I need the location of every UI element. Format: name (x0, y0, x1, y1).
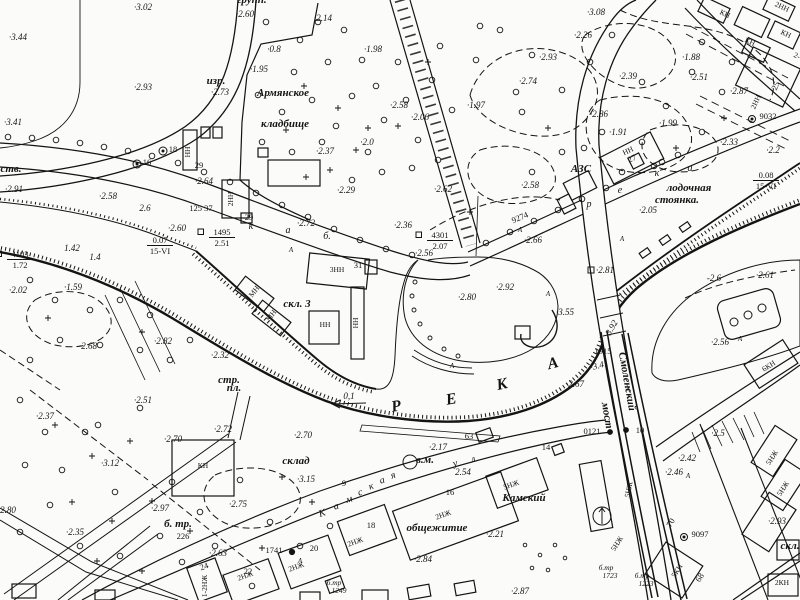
topographic-map: АрмянскоекладбищеАЗСлодочнаястоянка.скла… (0, 0, 800, 600)
island-outline (652, 260, 800, 381)
tree-symbol (179, 559, 185, 565)
tree-symbol (639, 79, 645, 85)
point-number: 20 (310, 543, 319, 553)
spot-elevation: ·2.39 (619, 71, 638, 81)
point-number: 29 (195, 160, 204, 170)
utility-booth-label: 1223 (639, 579, 654, 588)
cross-symbol (127, 438, 133, 444)
place-label: б. тр. (164, 518, 192, 530)
spot-elevation: ·2.5 (711, 428, 725, 438)
street-name-letter: б. (323, 231, 331, 242)
tree-symbol (410, 294, 414, 298)
tree-symbol (412, 308, 416, 312)
building (679, 222, 691, 233)
place-label: изр. (207, 75, 226, 87)
street-name-letter: а (286, 225, 291, 236)
spot-elevation: ·2.60 (236, 9, 255, 19)
tree-symbol (77, 543, 83, 549)
cross-symbol (365, 125, 371, 131)
building-type-label: 5НЖ (764, 448, 780, 466)
spot-elevation: ·2.58 (390, 100, 409, 110)
tree-symbol (263, 19, 269, 25)
spot-elevation: ·2.37 (316, 146, 335, 156)
cross-symbol (52, 422, 58, 428)
spot-elevation: 1.4 (89, 252, 101, 262)
tree-symbol (599, 129, 605, 135)
building-type-label: 2НН (749, 93, 764, 111)
tree-symbol (553, 543, 557, 547)
building-type-label: 5НЖ (775, 479, 791, 497)
benchmark-square (198, 229, 204, 235)
spot-elevation: ·2.62 (434, 184, 453, 194)
pole-symbol-dot (136, 163, 138, 165)
river-name-letter: Р (389, 397, 403, 416)
building (454, 580, 476, 595)
spot-elevation: ·1.99 (659, 118, 678, 128)
spot-elevation: ·3.02 (134, 2, 153, 12)
tree-symbol (95, 422, 101, 428)
building-type-label: 5НЖ (609, 534, 625, 552)
tree-symbol (381, 117, 387, 123)
tree-symbol (529, 169, 535, 175)
spot-elevation: ·2.97 (151, 503, 170, 513)
place-label: АЗС (570, 163, 592, 175)
building-type-label: НН (183, 146, 192, 157)
peninsula (360, 196, 558, 442)
tree-symbol (77, 140, 83, 146)
water-level-mark-top: 0.07 (153, 235, 168, 245)
tree-symbol (563, 556, 567, 560)
tree-symbol (449, 107, 455, 113)
tree-symbol (373, 83, 379, 89)
spot-elevation: ·2.87 (730, 86, 749, 96)
tree-symbol (112, 489, 118, 495)
street-name-letter: с (356, 487, 364, 499)
tree-symbol (415, 137, 421, 143)
place-label: общежитие (407, 522, 468, 534)
building-type-label: 2КН (775, 578, 790, 587)
spot-elevation: ·2.91 (5, 184, 23, 194)
tree-symbol (699, 129, 705, 135)
tree-symbol (197, 509, 203, 515)
place-label: Армянское (256, 87, 309, 99)
tree-symbol (201, 169, 207, 175)
manhole-symbol (608, 430, 613, 435)
tree-symbol (359, 57, 365, 63)
river-name-letter: Е (444, 390, 458, 409)
building-type-label: 5КН (669, 562, 685, 579)
benchmark-bottom: 2.07 (433, 241, 448, 251)
spot-elevation: ·2.70 (294, 430, 313, 440)
spot-elevation: ·2.51 (134, 395, 152, 405)
surface-material-mark: А (545, 290, 551, 298)
tree-symbol (279, 109, 285, 115)
spot-elevation: ·2.58 (521, 180, 540, 190)
spot-elevation: ·2.92 (496, 282, 515, 292)
cross-symbol (279, 474, 285, 480)
spot-elevation: ·2.66 (524, 235, 543, 245)
tree-symbol (137, 405, 143, 411)
tree-symbol (456, 354, 460, 358)
benchmark-bottom: 1.72 (13, 260, 28, 270)
building (337, 505, 396, 556)
tree-symbol (259, 139, 265, 145)
utility-booth-label: 1249 (332, 586, 347, 595)
tree-symbol (473, 57, 479, 63)
spot-elevation: ·2.72 (297, 218, 316, 228)
building-type-label: 2НЖ (434, 508, 452, 522)
spot-elevation: ·2.56 (711, 337, 730, 347)
building (579, 461, 612, 532)
spot-elevation: ·1.88 (682, 52, 701, 62)
building (639, 248, 651, 259)
place-label: склад (282, 455, 310, 467)
tree-symbol (117, 553, 123, 559)
spot-elevation: ·2.51 (690, 72, 708, 82)
point-number: 125 37. (189, 203, 215, 213)
spot-elevation: ·1.97 (467, 100, 486, 110)
point-number: 9274 (510, 209, 530, 225)
tree-symbol (349, 177, 355, 183)
point-number: 68 (693, 571, 706, 584)
tree-symbol (52, 297, 58, 303)
building (734, 7, 770, 38)
building-type-label: 2НН (774, 0, 792, 14)
place-label: Камский (501, 492, 545, 504)
vegetation-symbols (5, 19, 735, 589)
cross-symbol (353, 147, 359, 153)
building-type-label: МН (247, 283, 262, 299)
surface-material-mark: А (737, 335, 743, 343)
tree-symbol (42, 429, 48, 435)
spot-elevation: 2.6 (139, 203, 151, 213)
manhole-symbol (289, 549, 294, 554)
tree-symbol (17, 397, 23, 403)
spot-elevation: ·1.98 (364, 44, 383, 54)
tree-symbol (137, 347, 143, 353)
surface-material-mark: А (619, 235, 625, 243)
spot-elevation: ·2.33 (720, 137, 739, 147)
spot-elevation: ·3.12 (101, 458, 120, 468)
north-street (0, 143, 470, 280)
tree-symbol (719, 89, 725, 95)
tree-symbol (175, 160, 181, 166)
tree-symbol (428, 336, 432, 340)
tree-symbol (513, 89, 519, 95)
spot-elevation: ·2.87 (511, 586, 530, 596)
spot-elevation: ·2.73 (211, 87, 230, 97)
place-label: кладбище (261, 118, 309, 130)
surface-material-mark: А (517, 226, 523, 234)
spot-elevation: ·2.05 (639, 205, 658, 215)
tree-symbol (57, 337, 63, 343)
spot-elevation: ·2.21 (486, 529, 504, 539)
street-name-letter: л (468, 454, 477, 466)
tree-symbol (523, 543, 527, 547)
tree-symbol (59, 467, 65, 473)
point-number: 29 (245, 212, 254, 222)
spot-elevation: ·2.81 (596, 265, 614, 275)
spot-elevation: ·2.86 (590, 109, 609, 119)
tree-symbol (409, 165, 415, 171)
spot-elevation: ·1.91 (609, 127, 627, 137)
point-number: 10 (636, 425, 645, 435)
place-label: в.м. (416, 454, 434, 466)
tank-symbol (744, 311, 752, 319)
spot-elevation: ·3.44 (9, 32, 28, 42)
survey-point-symbol-dot (751, 118, 753, 120)
tree-symbol (519, 109, 525, 115)
tree-symbol (349, 93, 355, 99)
cross-symbol (721, 115, 727, 121)
river-name-letter: А (545, 354, 561, 373)
spot-elevation: ·2.29 (337, 185, 356, 195)
tree-symbol (289, 149, 295, 155)
spot-elevation: ·2.35 (66, 527, 85, 537)
place-label: стоянка. (655, 194, 699, 206)
spot-elevation: ·2.17 (429, 442, 448, 452)
place-label: групп. (237, 0, 266, 6)
tree-symbol (497, 27, 503, 33)
tree-symbol (477, 23, 483, 29)
building-type-label: НН (351, 317, 360, 328)
tree-symbol (27, 277, 33, 283)
tree-symbol (29, 135, 35, 141)
tank-symbol (758, 304, 766, 312)
spot-elevation: ·2.2 (766, 145, 780, 155)
river-name-letter-small: р (586, 199, 592, 210)
spot-elevation: ·2.61 (756, 270, 774, 280)
tree-symbol (365, 149, 371, 155)
tree-symbol (437, 43, 443, 49)
street-name-letter: к (367, 481, 375, 493)
building-type-label: МН (264, 307, 279, 323)
buildings (12, 0, 800, 600)
tree-symbol (22, 462, 28, 468)
water-level-mark-bottom: 15-VI (756, 181, 776, 191)
spot-elevation: ·2.37 (36, 411, 55, 421)
street-name-letter: а (332, 501, 340, 513)
point-number: 0121 (584, 426, 601, 436)
spot-elevation: ·2.06 (411, 112, 430, 122)
spot-elevation: ·2.84 (414, 554, 433, 564)
tree-symbol (5, 134, 11, 140)
building-type-label: 2НН (226, 191, 235, 206)
spot-elevation: ·2.68 (79, 341, 98, 351)
water-level-mark-bottom: 15-VI (150, 246, 170, 256)
cross-symbol (395, 123, 401, 129)
spot-elevation: ·1.95 (250, 64, 269, 74)
cross-symbol (673, 145, 679, 151)
place-label: ств. (0, 163, 21, 175)
tree-symbol (101, 144, 107, 150)
topographic-map-viewport: АрмянскоекладбищеАЗСлодочнаястоянка.скла… (0, 0, 800, 600)
spot-elevation: ·3.55 (556, 307, 575, 317)
building-type-label: 2НЖ (346, 535, 364, 549)
tree-symbol (267, 519, 273, 525)
river-name-letter: К (494, 375, 510, 394)
tree-symbol (237, 477, 243, 483)
tree-symbol (559, 149, 565, 155)
street-name-letter: а (378, 475, 386, 487)
place-label: пл. (227, 382, 242, 394)
water-level-mark-top: 0.08 (759, 170, 774, 180)
building (716, 287, 783, 341)
tree-symbol (167, 357, 173, 363)
spot-elevation: ·2.36 (394, 220, 413, 230)
spot-elevation: ·0.8 (267, 44, 281, 54)
spot-elevation: ·2.67 (566, 379, 585, 389)
cross-symbol (335, 105, 341, 111)
building-type-label: 3НН (330, 265, 345, 274)
building-type-label: НН (320, 320, 331, 329)
place-label: скл. 3 (283, 298, 311, 310)
tree-symbol (327, 523, 333, 529)
tree-symbol (187, 337, 193, 343)
benchmark-top: 4103 (12, 249, 29, 259)
cross-symbol (69, 499, 75, 505)
place-label: лодочная (666, 182, 712, 194)
building (407, 584, 431, 600)
tree-symbol (395, 59, 401, 65)
tree-symbol (87, 307, 93, 313)
spot-elevation: ·2.82 (154, 336, 173, 346)
building-type-label: КН (779, 27, 793, 40)
cross-symbol (327, 167, 333, 173)
spot-elevation: ·2.60 (168, 223, 187, 233)
building (552, 444, 564, 456)
tree-symbol (297, 37, 303, 43)
spot-elevation: ·2.64 (195, 176, 214, 186)
spot-elevation: ·3.41 (4, 117, 22, 127)
point-number: 18 (169, 144, 178, 154)
point-number: 226 (177, 531, 190, 541)
spot-elevation: ·2.63 (209, 548, 228, 558)
point-number: 1741 (266, 545, 283, 555)
building (268, 160, 320, 186)
river-name-letter-small: е (618, 185, 623, 196)
benchmark-top: 1495 (214, 227, 231, 237)
tree-symbol (333, 123, 339, 129)
spot-elevation: 2.80 (0, 505, 16, 515)
tree-symbol (413, 280, 417, 284)
cross-symbol (303, 174, 309, 180)
building (659, 235, 671, 246)
building (300, 592, 320, 600)
quay-road (468, 109, 800, 266)
tree-symbol (291, 69, 297, 75)
tree-symbol (309, 97, 315, 103)
spot-elevation: ·2.56 (415, 248, 434, 258)
point-number: 31 (354, 260, 363, 270)
spot-elevation: ·2.93 (134, 82, 153, 92)
tree-symbol (157, 533, 163, 539)
tree-symbol (529, 52, 535, 58)
tree-symbol (418, 322, 422, 326)
building-type-label: 2НЖ (287, 560, 305, 574)
point-number: 63 (465, 431, 474, 441)
building-type-label: 2НЖ (236, 569, 254, 583)
building (213, 127, 222, 138)
point-number: 9097 (692, 529, 709, 539)
point-number: 14 (542, 442, 551, 452)
spot-elevation: ·2.80 (458, 292, 477, 302)
building (515, 326, 530, 339)
spot-elevation: ·2.14 (314, 13, 333, 23)
spot-elevation: -2.6 (707, 273, 722, 283)
spot-elevation: ·3.08 (587, 7, 606, 17)
tree-symbol (538, 553, 542, 557)
spot-elevation: ·2.70 (164, 434, 183, 444)
cross-symbol (425, 59, 431, 65)
cemetery-road (390, 0, 480, 248)
benchmark-bottom: 2.51 (215, 238, 230, 248)
building (393, 472, 519, 560)
spot-elevation: ·2.02 (9, 285, 28, 295)
tree-symbol (442, 347, 446, 351)
spot-elevation: ·2.42 (678, 453, 697, 463)
building-type-label: 2- (792, 50, 800, 61)
building (258, 148, 268, 157)
manhole-symbol (624, 428, 629, 433)
point-number: 24 (198, 560, 210, 573)
tree-symbol (546, 568, 550, 572)
benchmark-top: 4301 (432, 230, 449, 240)
tree-symbol (530, 566, 534, 570)
building (362, 590, 388, 600)
survey-point-symbol-dot (683, 536, 685, 538)
spot-elevation: ·2.32 (211, 350, 230, 360)
tank-symbol (730, 318, 738, 326)
surface-material-mark: А (685, 472, 691, 480)
surface-material-mark: А (297, 557, 303, 565)
benchmark-square (416, 232, 422, 238)
point-number: 70 (664, 516, 677, 528)
smolensky-bridge-road (576, 0, 671, 600)
point-number: 16 (446, 487, 455, 497)
spot-elevation: ·2.75 (229, 499, 248, 509)
point-number: 1915 (595, 346, 612, 356)
fountain-arrow (599, 508, 605, 524)
tree-symbol (249, 583, 255, 589)
surface-material-mark: А (449, 362, 455, 370)
building-type-label: КН (743, 35, 757, 48)
point-number: 16 (143, 157, 152, 167)
river-name-letter-small: а (688, 163, 693, 174)
tree-symbol (117, 297, 123, 303)
tree-symbol (319, 139, 325, 145)
tree-symbol (97, 342, 103, 348)
tree-symbol (559, 87, 565, 93)
utility-booth-label: 1723 (603, 571, 618, 580)
point-number: 9 (342, 478, 346, 488)
cross-symbol (259, 545, 265, 551)
street-name-letter: к (249, 221, 254, 232)
spot-elevation: ·1.59 (64, 282, 83, 292)
spot-elevation: ·2.93 (539, 52, 558, 62)
spot-elevation: ·2.74 (519, 76, 538, 86)
street-name-letter: я (388, 470, 397, 482)
flow-speed-label: 0,1 (343, 391, 354, 401)
spot-elevation: 1.42 (64, 243, 80, 253)
cross-symbol (89, 453, 95, 459)
point-number: 9032 (760, 111, 777, 121)
tree-symbol (341, 27, 347, 33)
spot-elevation: ·2.93 (768, 516, 787, 526)
building-type-label: 5НЖ (502, 478, 520, 492)
tree-symbol (47, 502, 53, 508)
building-type-label: 1-2НЖ (200, 575, 209, 597)
